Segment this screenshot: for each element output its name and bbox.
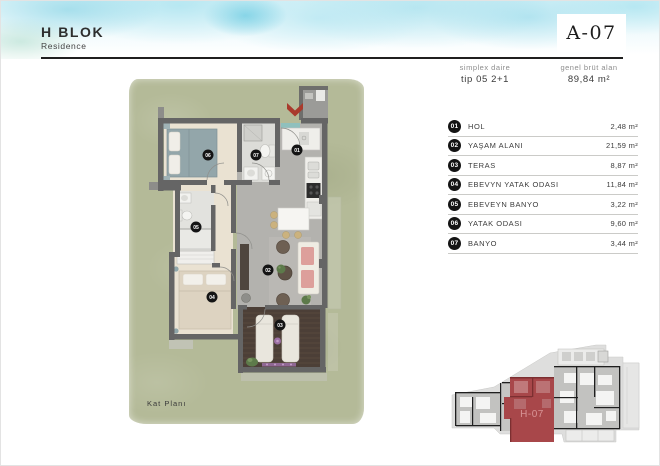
room-number-badge: 07 [448,237,461,250]
svg-text:01: 01 [294,148,300,154]
room-number-badge: 06 [448,217,461,230]
room-list: 01 HOL 2,48 m² 02 YAŞAM ALANI 21,59 m² 0… [448,117,638,254]
floor-plan-drawing: 01 02 03 04 05 06 07 [129,79,364,424]
room-name: YAŞAM ALANI [468,141,606,150]
svg-text:04: 04 [209,295,215,301]
room-area-value: 9,60 m² [610,219,638,228]
room-name: TERAS [468,161,610,170]
room-area-value: 11,84 m² [607,180,638,189]
room-area-value: 3,22 m² [610,200,638,209]
room-area-value: 2,48 m² [610,122,638,131]
brochure-page: H BLOK Residence A-07 simplex daire tip … [0,0,660,466]
svg-text:06: 06 [205,153,211,159]
plan-marker-06: 06 [203,150,214,161]
room-name: BANYO [468,239,610,248]
svg-text:07: 07 [253,153,259,159]
room-row: 04 EBEVYN YATAK ODASI 11,84 m² [448,176,638,196]
unit-type-info: simplex daire tip 05 2+1 [429,63,541,85]
room-name: YATAK ODASI [468,219,610,228]
closet-05 [177,251,214,264]
plan-marker-03: 03 [275,320,286,331]
block-subtitle: Residence [41,41,87,51]
svg-text:05: 05 [193,225,199,231]
plan-caption: Kat Planı [147,399,186,408]
room-area-value: 8,87 m² [610,161,638,170]
header-divider [41,57,623,59]
room-area-value: 21,59 m² [606,141,638,150]
room-row: 05 EBEVEYN BANYO 3,22 m² [448,195,638,215]
svg-text:03: 03 [277,323,283,329]
room-number-badge: 02 [448,139,461,152]
unit-code-badge: A-07 [557,14,626,52]
room-number-badge: 03 [448,159,461,172]
room-row: 07 BANYO 3,44 m² [448,234,638,254]
plan-marker-07: 07 [251,150,262,161]
room-number-badge: 05 [448,198,461,211]
room-name: EBEVEYN BANYO [468,200,610,209]
plan-marker-02: 02 [263,265,274,276]
unit-area-label: genel brüt alan [533,63,645,72]
room-number-badge: 01 [448,120,461,133]
room-number-badge: 04 [448,178,461,191]
room-row: 03 TERAS 8,87 m² [448,156,638,176]
unit-area-value: 89,84 m² [533,74,645,85]
plan-marker-04: 04 [207,292,218,303]
site-key-plan-drawing: H-07 [446,333,658,465]
plan-marker-05: 05 [191,222,202,233]
room-name: HOL [468,122,610,131]
room-row: 06 YATAK ODASI 9,60 m² [448,215,638,235]
plan-marker-01: 01 [292,145,303,156]
room-row: 02 YAŞAM ALANI 21,59 m² [448,137,638,157]
floor-plan: 01 02 03 04 05 06 07 Kat Planı [129,79,364,424]
bed-04 [173,266,231,333]
site-plan-building: H-07 [452,345,639,442]
site-plan-highlight-unit: H-07 [504,377,554,442]
block-title: H BLOK [41,24,104,40]
unit-area-info: genel brüt alan 89,84 m² [533,63,645,85]
room-row: 01 HOL 2,48 m² [448,117,638,137]
svg-text:02: 02 [265,268,271,274]
unit-type-value: tip 05 2+1 [429,74,541,85]
room-area-value: 3,44 m² [610,239,638,248]
site-plan-highlight-label: H-07 [520,409,544,420]
building-core [299,86,328,120]
site-key-plan: H-07 [446,333,658,465]
unit-type-label: simplex daire [429,63,541,72]
room-name: EBEVYN YATAK ODASI [468,180,607,189]
